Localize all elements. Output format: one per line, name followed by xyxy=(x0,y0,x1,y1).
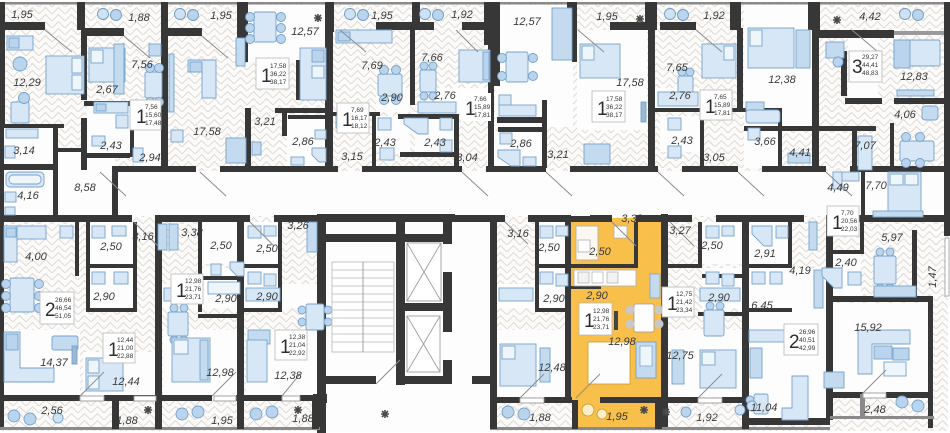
svg-text:8,58: 8,58 xyxy=(74,182,96,194)
svg-text:2,50: 2,50 xyxy=(209,240,232,252)
svg-text:48,83: 48,83 xyxy=(862,70,879,77)
svg-text:17,81: 17,81 xyxy=(474,112,491,119)
svg-text:1,88: 1,88 xyxy=(529,412,551,424)
svg-text:2,76: 2,76 xyxy=(668,90,691,102)
svg-text:7,70: 7,70 xyxy=(865,180,887,192)
svg-text:4,41: 4,41 xyxy=(789,147,810,159)
svg-text:12,44: 12,44 xyxy=(112,376,140,388)
svg-text:7,69: 7,69 xyxy=(351,107,364,114)
svg-text:3,21: 3,21 xyxy=(547,149,568,161)
svg-text:44,41: 44,41 xyxy=(862,62,879,69)
svg-text:3,04: 3,04 xyxy=(456,152,477,164)
svg-text:15,89: 15,89 xyxy=(714,102,731,109)
svg-text:2,90: 2,90 xyxy=(542,293,565,305)
svg-text:3,38: 3,38 xyxy=(181,227,203,239)
svg-text:3,15: 3,15 xyxy=(341,151,363,163)
svg-text:2,43: 2,43 xyxy=(423,137,446,149)
svg-text:1,95: 1,95 xyxy=(606,411,628,423)
svg-text:17,48: 17,48 xyxy=(145,120,162,127)
svg-text:7,65: 7,65 xyxy=(666,62,688,74)
svg-text:21,42: 21,42 xyxy=(676,299,693,306)
svg-text:2,90: 2,90 xyxy=(380,92,403,104)
svg-text:40,51: 40,51 xyxy=(799,337,816,344)
svg-text:17,58: 17,58 xyxy=(606,96,623,103)
svg-text:42,99: 42,99 xyxy=(799,345,816,352)
svg-text:2: 2 xyxy=(45,300,56,321)
svg-text:15,60: 15,60 xyxy=(145,112,162,119)
svg-text:2,90: 2,90 xyxy=(214,293,237,305)
svg-text:21,04: 21,04 xyxy=(289,342,306,349)
svg-text:3,66: 3,66 xyxy=(754,136,776,148)
svg-text:1,47: 1,47 xyxy=(927,265,939,287)
svg-text:1,92: 1,92 xyxy=(703,10,724,22)
svg-text:3,14: 3,14 xyxy=(13,145,34,157)
svg-text:11,04: 11,04 xyxy=(751,402,778,414)
svg-text:12,98: 12,98 xyxy=(593,308,610,315)
svg-text:51,05: 51,05 xyxy=(55,313,72,320)
svg-text:2,90: 2,90 xyxy=(585,290,608,302)
svg-text:2: 2 xyxy=(789,332,800,353)
svg-text:17,81: 17,81 xyxy=(714,110,731,117)
svg-text:38,17: 38,17 xyxy=(270,79,287,86)
svg-text:2,43: 2,43 xyxy=(373,137,396,149)
svg-text:2,94: 2,94 xyxy=(138,152,160,164)
svg-text:2,43: 2,43 xyxy=(99,140,122,152)
svg-text:26,96: 26,96 xyxy=(799,329,816,336)
svg-text:3,27: 3,27 xyxy=(669,225,691,237)
svg-text:1,92: 1,92 xyxy=(451,9,472,21)
svg-text:1,95: 1,95 xyxy=(371,10,393,22)
svg-text:1,95: 1,95 xyxy=(210,10,232,22)
svg-text:12,75: 12,75 xyxy=(666,350,694,362)
svg-text:2,86: 2,86 xyxy=(509,138,532,150)
svg-text:23,71: 23,71 xyxy=(185,294,202,301)
svg-text:7,56: 7,56 xyxy=(145,104,158,111)
svg-text:17,58: 17,58 xyxy=(193,126,221,138)
svg-text:2,90: 2,90 xyxy=(92,291,115,303)
svg-text:12,38: 12,38 xyxy=(289,334,306,341)
svg-text:15,92: 15,92 xyxy=(854,322,882,334)
svg-text:7,66: 7,66 xyxy=(421,52,443,64)
svg-text:2,76: 2,76 xyxy=(433,90,456,102)
svg-text:3,26: 3,26 xyxy=(287,220,309,232)
svg-text:3,16: 3,16 xyxy=(132,231,154,243)
svg-text:4,19: 4,19 xyxy=(789,265,810,277)
svg-text:22,03: 22,03 xyxy=(841,226,858,233)
svg-text:14,37: 14,37 xyxy=(40,357,68,369)
svg-text:17,58: 17,58 xyxy=(270,63,287,70)
svg-text:12,98: 12,98 xyxy=(608,336,636,348)
svg-text:2,40: 2,40 xyxy=(834,257,857,269)
svg-text:12,57: 12,57 xyxy=(513,16,541,28)
svg-text:2,91: 2,91 xyxy=(753,248,775,260)
svg-text:2,86: 2,86 xyxy=(291,136,314,148)
svg-text:7,07: 7,07 xyxy=(854,140,876,152)
svg-text:3: 3 xyxy=(852,57,863,78)
svg-text:22,88: 22,88 xyxy=(117,353,134,360)
svg-text:2,50: 2,50 xyxy=(99,241,122,253)
svg-text:12,98: 12,98 xyxy=(185,278,202,285)
svg-text:4,49: 4,49 xyxy=(827,182,848,194)
svg-text:12,98: 12,98 xyxy=(206,367,234,379)
svg-text:7,69: 7,69 xyxy=(361,60,382,72)
svg-text:1,95: 1,95 xyxy=(596,11,618,23)
svg-text:2,90: 2,90 xyxy=(707,292,730,304)
svg-text:4,16: 4,16 xyxy=(17,190,39,202)
svg-text:1,88: 1,88 xyxy=(116,415,138,427)
svg-text:12,48: 12,48 xyxy=(538,362,566,374)
svg-text:21,76: 21,76 xyxy=(593,316,610,323)
svg-text:4,42: 4,42 xyxy=(859,11,880,23)
svg-text:36,22: 36,22 xyxy=(270,71,287,78)
svg-text:4,06: 4,06 xyxy=(894,109,916,121)
svg-text:29,27: 29,27 xyxy=(862,54,879,61)
svg-text:12,29: 12,29 xyxy=(13,77,41,89)
svg-text:1,88: 1,88 xyxy=(292,413,314,425)
svg-text:2,50: 2,50 xyxy=(700,240,723,252)
svg-text:3,16: 3,16 xyxy=(507,228,529,240)
svg-text:2,90: 2,90 xyxy=(255,291,278,303)
svg-text:7,56: 7,56 xyxy=(131,59,153,71)
svg-text:21,76: 21,76 xyxy=(185,286,202,293)
svg-text:21,00: 21,00 xyxy=(117,345,134,352)
svg-text:7,66: 7,66 xyxy=(474,96,487,103)
svg-text:23,34: 23,34 xyxy=(676,307,693,314)
svg-text:3,05: 3,05 xyxy=(703,152,725,164)
svg-text:2,67: 2,67 xyxy=(95,84,118,96)
svg-text:1,92: 1,92 xyxy=(696,412,717,424)
svg-text:2,50: 2,50 xyxy=(255,243,278,255)
svg-text:12,83: 12,83 xyxy=(900,71,928,83)
svg-text:1,88: 1,88 xyxy=(128,12,150,24)
svg-text:26,66: 26,66 xyxy=(55,297,72,304)
svg-text:18,12: 18,12 xyxy=(351,123,368,130)
svg-text:20,56: 20,56 xyxy=(841,218,858,225)
svg-text:7,65: 7,65 xyxy=(714,94,727,101)
svg-text:1,95: 1,95 xyxy=(11,9,33,21)
svg-text:36,22: 36,22 xyxy=(606,104,623,111)
svg-text:2,50: 2,50 xyxy=(537,242,560,254)
svg-text:16,17: 16,17 xyxy=(351,115,368,122)
svg-text:2,48: 2,48 xyxy=(863,404,886,416)
svg-text:12,75: 12,75 xyxy=(676,291,693,298)
svg-text:23,71: 23,71 xyxy=(593,324,610,331)
svg-text:1,95: 1,95 xyxy=(211,415,233,427)
svg-text:22,92: 22,92 xyxy=(289,350,306,357)
svg-text:12,38: 12,38 xyxy=(768,74,796,86)
svg-text:4,00: 4,00 xyxy=(25,251,47,263)
svg-text:6,45: 6,45 xyxy=(751,300,773,312)
svg-text:12,38: 12,38 xyxy=(274,370,302,382)
svg-text:3,38: 3,38 xyxy=(621,213,643,225)
svg-text:2,43: 2,43 xyxy=(670,135,693,147)
svg-text:46,54: 46,54 xyxy=(55,305,72,312)
svg-text:2,56: 2,56 xyxy=(40,405,63,417)
svg-text:17,58: 17,58 xyxy=(616,77,644,89)
svg-text:5,97: 5,97 xyxy=(881,232,903,244)
svg-text:7,70: 7,70 xyxy=(841,210,854,217)
svg-text:3,21: 3,21 xyxy=(254,116,275,128)
svg-text:2,50: 2,50 xyxy=(588,246,611,258)
svg-text:12,57: 12,57 xyxy=(291,26,319,38)
svg-text:12,44: 12,44 xyxy=(117,337,134,344)
svg-text:15,89: 15,89 xyxy=(474,104,491,111)
svg-text:38,17: 38,17 xyxy=(606,112,623,119)
